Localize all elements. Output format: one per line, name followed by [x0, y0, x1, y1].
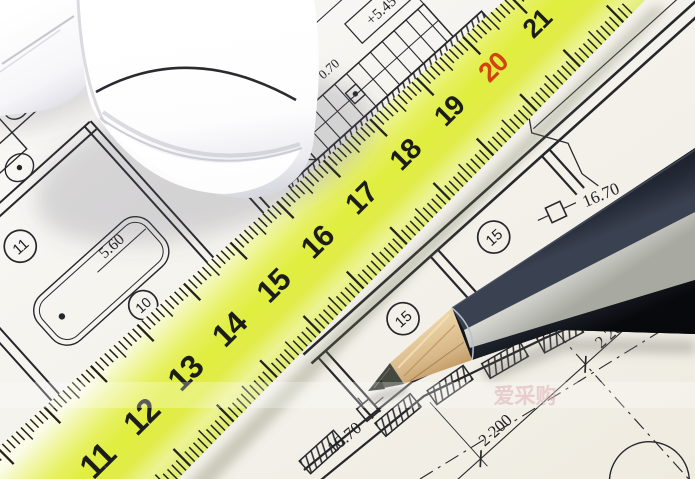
watermark-text: 爱采购	[494, 384, 557, 408]
blueprint-photo: 11 10 15 15 5.60 +5.45 0.70	[0, 0, 695, 479]
scene-canvas: 11 10 15 15 5.60 +5.45 0.70	[0, 0, 695, 479]
watermark-band	[0, 382, 695, 408]
